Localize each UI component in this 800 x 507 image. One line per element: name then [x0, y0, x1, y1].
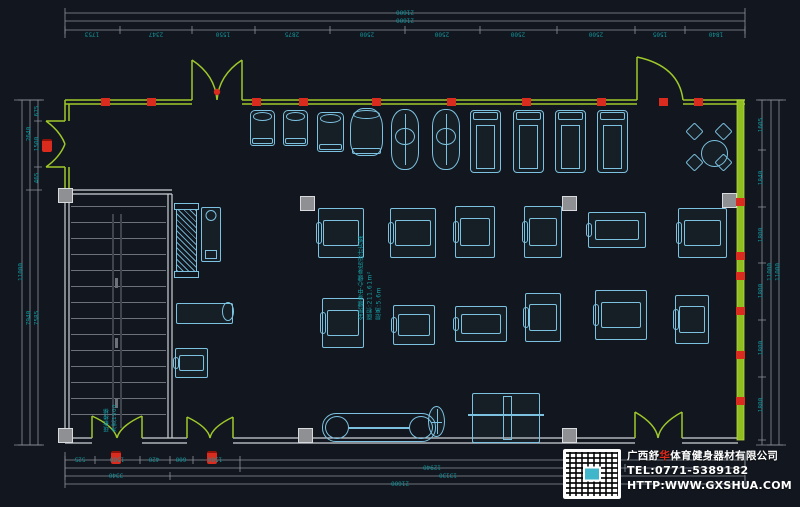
plan-title-note: 全民健身中心健身房设计方案 面积:211.61m² 层高:5.6m [358, 245, 384, 320]
cad-floorplan-canvas: 2160021600175323471550287525002500250025… [0, 0, 800, 507]
plan-area-line: 面积:211.61m² [367, 245, 376, 320]
plan-height-line: 层高:5.6m [375, 245, 384, 320]
company-branding: 广西舒华体育健身器材有限公司 TEL:0771-5389182 HTTP:WWW… [563, 449, 792, 499]
stair-note-line: 净宽1500 [112, 392, 120, 432]
company-phone: TEL:0771-5389182 [627, 463, 792, 478]
qr-code [563, 449, 621, 499]
company-name: 广西舒华体育健身器材有限公司 [627, 449, 792, 463]
company-website: HTTP:WWW.GXSHUA.COM [627, 478, 792, 493]
plan-title-line: 全民健身中心健身房设计方案 [358, 245, 367, 320]
stair-exit-note: 疏散楼梯 净宽1500 [104, 392, 120, 432]
stair-note-line: 疏散楼梯 [104, 392, 112, 432]
